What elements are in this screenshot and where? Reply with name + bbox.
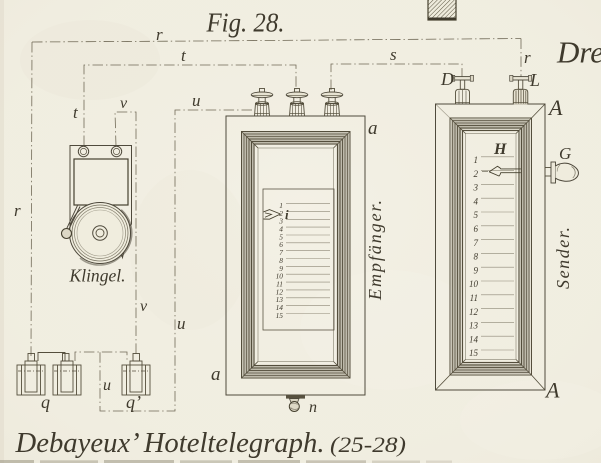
svg-text:15: 15 — [469, 348, 479, 358]
svg-text:6: 6 — [474, 224, 479, 234]
svg-text:r: r — [156, 25, 163, 44]
svg-text:q: q — [41, 392, 50, 412]
svg-text:u: u — [177, 314, 186, 333]
svg-text:15: 15 — [276, 311, 284, 320]
svg-text:9: 9 — [474, 265, 479, 275]
svg-text:u: u — [192, 91, 201, 110]
svg-text:A: A — [544, 378, 560, 403]
svg-text:L: L — [529, 70, 540, 90]
svg-text:10: 10 — [469, 279, 479, 289]
svg-text:13: 13 — [469, 321, 479, 331]
svg-text:i: i — [285, 207, 289, 222]
svg-text:Fig. 28.: Fig. 28. — [206, 8, 285, 38]
svg-text:G: G — [559, 144, 571, 163]
svg-text:s: s — [390, 45, 397, 64]
svg-text:D: D — [440, 69, 454, 89]
svg-text:14: 14 — [469, 334, 479, 344]
svg-text:n: n — [309, 399, 317, 416]
svg-text:u: u — [103, 377, 111, 394]
svg-text:H: H — [493, 141, 507, 158]
svg-text:a: a — [368, 118, 378, 139]
svg-text:7: 7 — [474, 238, 479, 248]
svg-text:v: v — [140, 298, 148, 315]
svg-text:8: 8 — [474, 252, 479, 262]
svg-text:12: 12 — [469, 307, 479, 317]
svg-text:Debayeux’ Hoteltelegraph.: Debayeux’ Hoteltelegraph. — [15, 427, 325, 459]
svg-text:1: 1 — [474, 155, 479, 165]
svg-text:2: 2 — [474, 169, 479, 179]
svg-text:A: A — [547, 95, 563, 120]
svg-text:11: 11 — [470, 293, 478, 303]
svg-text:Dre: Dre — [556, 35, 601, 70]
svg-text:3: 3 — [473, 183, 479, 193]
svg-text:q’: q’ — [126, 392, 141, 412]
svg-text:r: r — [14, 201, 21, 220]
svg-text:4: 4 — [474, 196, 479, 206]
svg-text:v: v — [120, 95, 128, 112]
svg-text:a: a — [211, 364, 221, 385]
svg-text:(25-28): (25-28) — [330, 432, 406, 457]
svg-text:Klingel.: Klingel. — [69, 266, 126, 286]
svg-text:r: r — [524, 48, 531, 67]
svg-text:Empfänger.: Empfänger. — [365, 200, 385, 301]
svg-text:5: 5 — [474, 210, 479, 220]
